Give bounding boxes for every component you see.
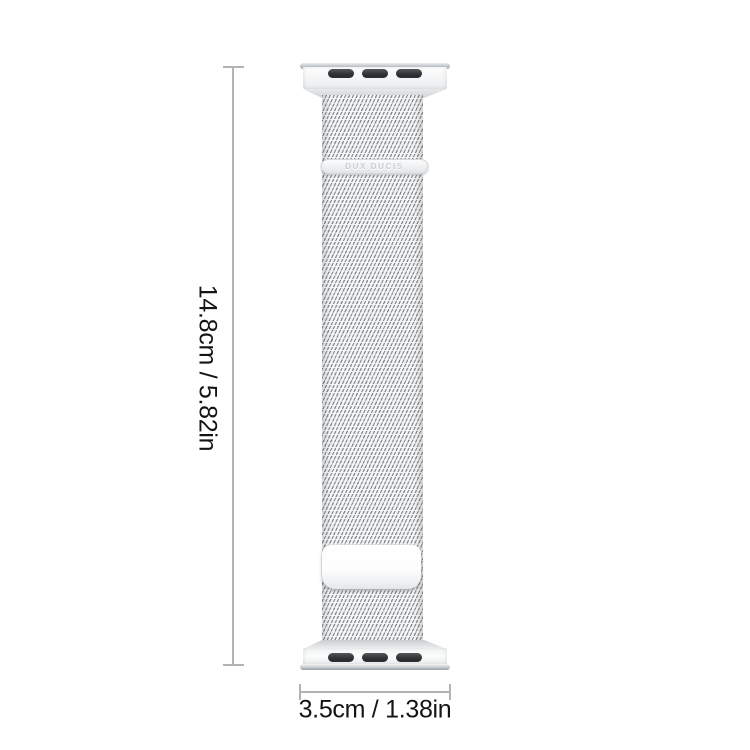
top-connector-lug bbox=[303, 67, 447, 89]
connector-slot bbox=[328, 69, 354, 78]
connector-slot bbox=[328, 653, 354, 662]
height-dimension-tick-bottom bbox=[223, 664, 244, 666]
connector-slot bbox=[396, 69, 422, 78]
connector-slot bbox=[396, 653, 422, 662]
width-dimension-label: 3.5cm / 1.38in bbox=[299, 696, 452, 725]
brand-label: DUX DUCIS bbox=[345, 162, 403, 171]
width-dimension-line bbox=[300, 691, 450, 693]
connector-slot bbox=[362, 69, 388, 78]
product-dimension-diagram: 14.8cm / 5.82in 3.5cm / 1.38in DUX DUCIS bbox=[0, 0, 750, 750]
bottom-connector-lug bbox=[303, 648, 447, 664]
connector-slot bbox=[362, 653, 388, 662]
height-dimension-label: 14.8cm / 5.82in bbox=[193, 285, 222, 451]
bottom-connector-bar bbox=[300, 664, 450, 670]
magnetic-sleeve bbox=[322, 545, 421, 589]
height-dimension-line bbox=[232, 66, 234, 666]
brand-clasp: DUX DUCIS bbox=[321, 159, 428, 174]
